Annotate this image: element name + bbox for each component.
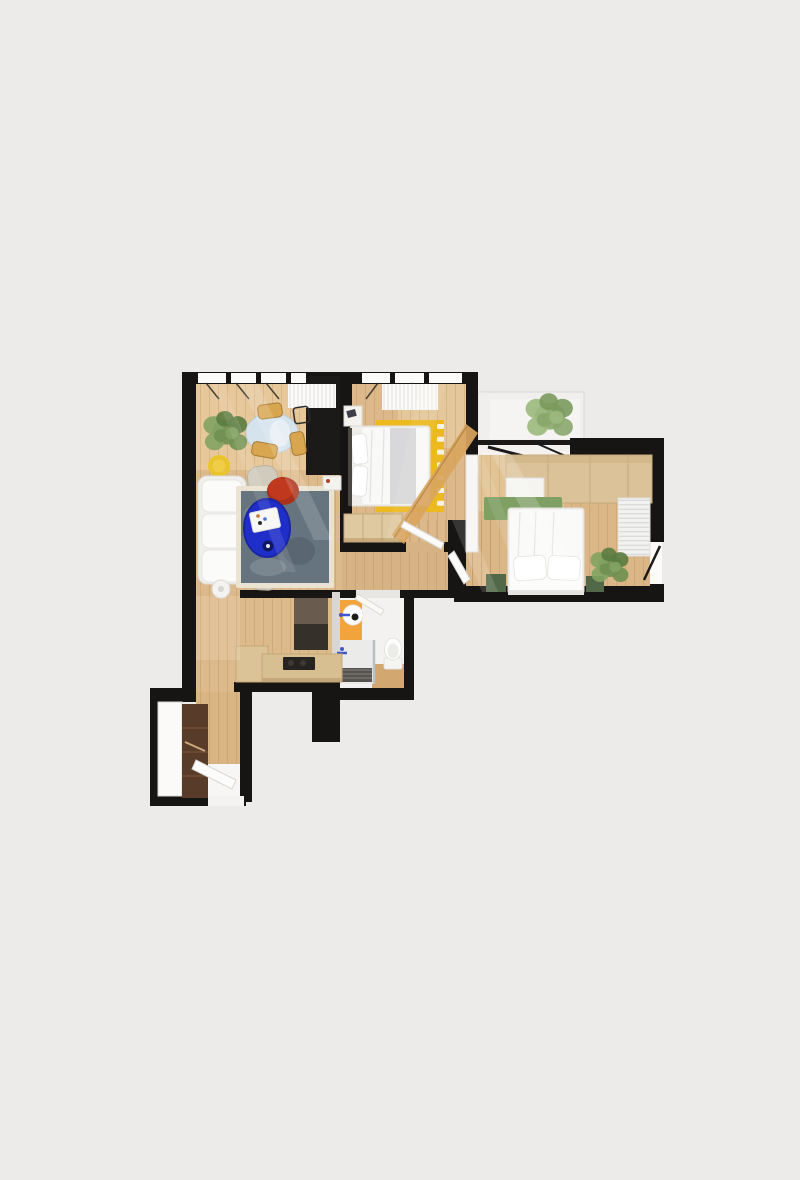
window-living-mullion-1	[226, 372, 231, 384]
bed-2-headboard	[508, 590, 584, 595]
wall-kitchen-bottom	[234, 682, 314, 692]
window-living-mullion-2	[256, 372, 261, 384]
bed-1-pillow-2	[351, 466, 368, 497]
kitchen-tall-unit-top	[294, 598, 328, 624]
entry-threshold	[208, 796, 244, 806]
bed-1-frame-edge	[348, 428, 352, 506]
window-bedroom-1-mullion-2	[424, 372, 429, 384]
tv-wall-shelf-item	[326, 479, 330, 483]
curtain-living	[288, 384, 336, 408]
bathroom-sink-drain	[352, 614, 359, 621]
coffee-table-plate-center	[266, 544, 270, 548]
sunbeam-kitchen	[196, 596, 240, 660]
wall-white-exterior	[158, 702, 182, 796]
wall-left-jog	[150, 688, 196, 702]
wall-hall-right	[240, 692, 252, 802]
kitchen-tall-unit-bottom	[294, 624, 328, 650]
kitchen-cooktop	[283, 657, 315, 670]
wall-outer-left-low	[150, 688, 158, 806]
bed-1-pillow-1	[351, 433, 369, 464]
radiator	[618, 498, 650, 556]
shower-handle-dot	[340, 647, 344, 651]
tray-item-3	[258, 521, 262, 525]
window-living-mullion-3	[286, 372, 291, 384]
plant-bedroom-2	[590, 548, 628, 582]
floor-plan	[0, 0, 800, 1180]
tray-item-1	[256, 514, 260, 518]
wall-bathroom-right	[404, 592, 414, 700]
window-bedroom-1-mullion-1	[390, 372, 395, 384]
plant-terrace	[526, 393, 573, 436]
wall-bathroom-bottom	[340, 688, 414, 700]
side-table-yellow-top	[213, 460, 226, 473]
toilet-seat	[388, 644, 399, 659]
cooktop-burner-1	[288, 660, 294, 666]
wall-stub-entry	[312, 682, 340, 742]
kitchen-counter-edge	[262, 678, 342, 682]
screenshot-background	[0, 0, 800, 1180]
wall-bedroom-2-top	[570, 438, 664, 455]
tv-wall-shelf	[323, 476, 341, 490]
cooktop-burner-2	[300, 660, 306, 666]
window-frame-bedroom-2-top	[478, 440, 570, 445]
wall-left	[182, 372, 196, 690]
window-bedroom-1-pane	[362, 373, 462, 383]
wall-corridor-south	[240, 590, 454, 598]
bathroom-faucet-dot	[339, 613, 343, 617]
wall-bedroom-1-bottom	[340, 542, 466, 552]
wardrobe-bedroom-2-shadow	[506, 455, 652, 463]
floor-lamp-core	[218, 586, 224, 592]
